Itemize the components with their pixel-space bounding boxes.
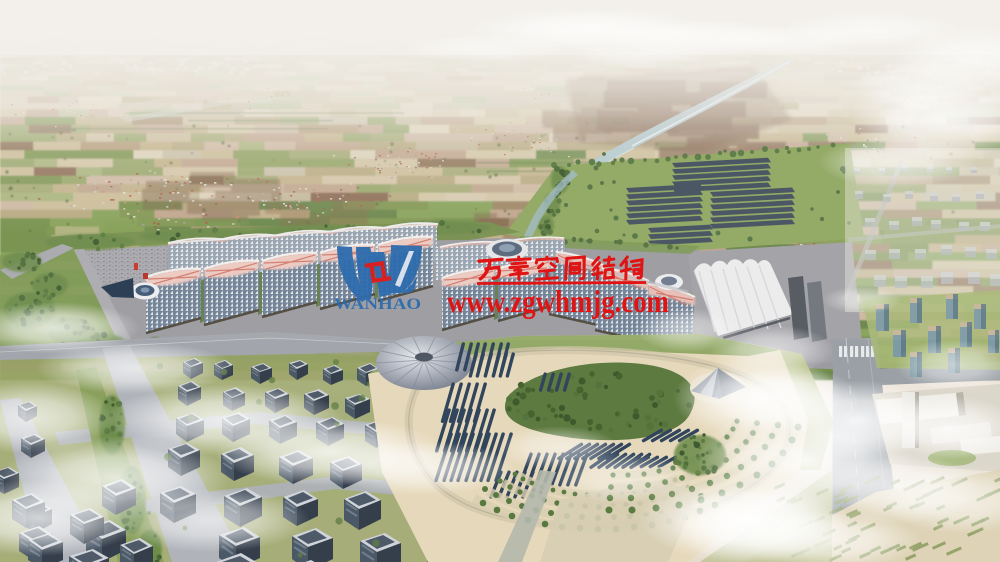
svg-text:WANHAO: WANHAO bbox=[334, 296, 421, 313]
svg-text:www.zgwhmjg.com: www.zgwhmjg.com bbox=[447, 283, 669, 319]
